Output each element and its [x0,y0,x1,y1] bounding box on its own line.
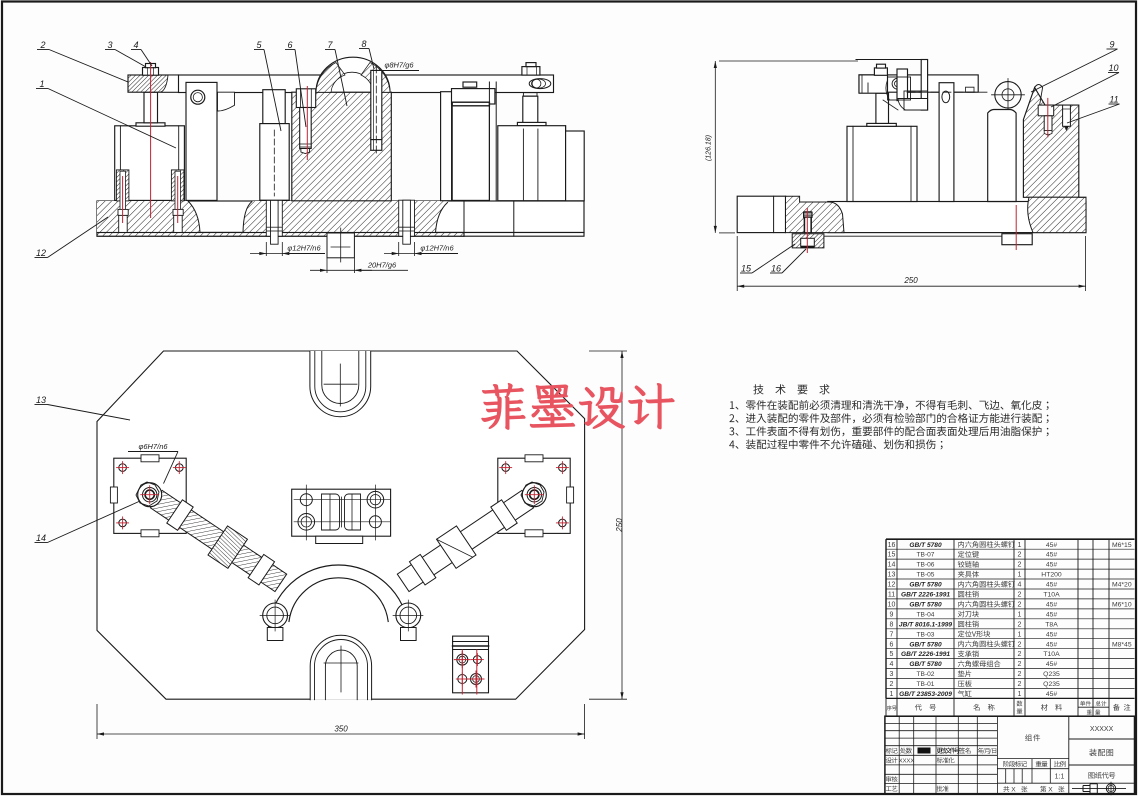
svg-text:1:1: 1:1 [1055,774,1065,781]
svg-text:13: 13 [888,572,896,579]
svg-text:1: 1 [39,79,44,89]
svg-text:GB/T 2226-1991: GB/T 2226-1991 [901,651,950,658]
svg-text:15: 15 [741,264,752,274]
svg-text:JB/T 8016.1-1999: JB/T 8016.1-1999 [899,621,952,628]
svg-text:1: 1 [1018,572,1022,579]
svg-text:φ12H7/n6: φ12H7/n6 [420,244,454,253]
svg-text:Q235: Q235 [1043,681,1060,688]
svg-text:TB-05: TB-05 [917,572,935,579]
svg-text:TB-06: TB-06 [917,562,935,569]
svg-text:XXXX: XXXX [899,759,915,765]
svg-text:φ8H7/g6: φ8H7/g6 [384,61,414,70]
svg-text:45#: 45# [1046,582,1058,589]
svg-text:2: 2 [1018,621,1022,628]
svg-text:3: 3 [890,671,894,678]
svg-text:XXXXX: XXXXX [1090,726,1114,733]
svg-text:φ12H7/n6: φ12H7/n6 [287,244,321,253]
svg-text:45#: 45# [1046,552,1058,559]
svg-text:9: 9 [890,611,894,618]
svg-text:13: 13 [36,395,46,405]
svg-text:45#: 45# [1046,641,1058,648]
svg-text:20H7/g6: 20H7/g6 [367,261,397,270]
svg-text:6: 6 [890,641,894,648]
svg-text:45#: 45# [1046,602,1058,609]
svg-text:GB/T 5780: GB/T 5780 [909,661,942,668]
svg-text:(126.18): (126.18) [706,135,713,161]
svg-text:4: 4 [890,661,894,668]
svg-text:TB-07: TB-07 [917,552,935,559]
svg-text:7: 7 [890,631,894,638]
svg-text:2: 2 [890,681,894,688]
svg-text:2: 2 [1018,671,1022,678]
svg-text:M8*45: M8*45 [1112,641,1132,648]
svg-text:5: 5 [890,651,894,658]
svg-text:GB/T 5780: GB/T 5780 [909,542,942,549]
svg-text:45#: 45# [1046,631,1058,638]
svg-text:HT200: HT200 [1041,572,1062,579]
svg-text:2: 2 [1018,651,1022,658]
svg-text:4: 4 [1018,582,1022,589]
svg-text:10: 10 [888,602,896,609]
svg-text:2: 2 [1018,562,1022,569]
svg-text:M6*10: M6*10 [1112,602,1132,609]
svg-text:250: 250 [615,518,624,533]
svg-text:12: 12 [888,582,896,589]
svg-text:GB/T 2226-1991: GB/T 2226-1991 [901,592,950,599]
svg-text:15: 15 [888,552,896,559]
svg-text:1: 1 [1018,542,1022,549]
svg-text:14: 14 [36,533,46,543]
svg-text:45#: 45# [1046,661,1058,668]
svg-text:M4*20: M4*20 [1112,582,1132,589]
svg-text:2: 2 [39,40,45,50]
svg-text:250: 250 [903,276,918,285]
svg-text:14: 14 [888,562,896,569]
svg-text:45#: 45# [1046,691,1058,698]
svg-text:T10A: T10A [1043,592,1060,599]
svg-text:8: 8 [361,39,366,49]
svg-text:1: 1 [1018,611,1022,618]
svg-text:GB/T 5780: GB/T 5780 [909,582,942,589]
svg-text:16: 16 [888,542,896,549]
svg-text:2: 2 [1018,641,1022,648]
svg-text:GB/T 23853-2009: GB/T 23853-2009 [899,691,952,698]
svg-text:2: 2 [1018,681,1022,688]
svg-text:12: 12 [36,248,46,258]
svg-text:TB-02: TB-02 [917,671,935,678]
svg-text:2: 2 [1018,661,1022,668]
svg-text:M6*15: M6*15 [1112,542,1132,549]
svg-text:X: X [1011,787,1016,794]
svg-text:16: 16 [771,264,781,274]
svg-text:Q235: Q235 [1043,671,1060,678]
svg-text:GB/T 5780: GB/T 5780 [909,602,942,609]
svg-text:45#: 45# [1046,562,1058,569]
svg-text:TB-03: TB-03 [917,631,935,638]
svg-text:8: 8 [890,621,894,628]
svg-text:45#: 45# [1046,611,1058,618]
svg-text:2: 2 [1018,552,1022,559]
svg-text:X: X [1048,787,1053,794]
svg-text:1: 1 [1018,631,1022,638]
svg-text:GB/T 5780: GB/T 5780 [909,641,942,648]
svg-text:45#: 45# [1046,542,1058,549]
svg-text:T8A: T8A [1045,621,1058,628]
svg-text:350: 350 [334,725,348,734]
svg-text:10: 10 [1108,63,1118,73]
svg-text:2: 2 [1018,592,1022,599]
svg-text:1: 1 [890,691,894,698]
svg-text:TB-01: TB-01 [917,681,935,688]
svg-text:2: 2 [1018,602,1022,609]
svg-text:φ6H7/n6: φ6H7/n6 [138,442,168,451]
svg-text:9: 9 [1109,40,1114,50]
svg-text:11: 11 [1109,95,1118,105]
svg-text:1: 1 [1018,691,1022,698]
svg-text:6: 6 [287,40,292,50]
svg-text:TB-04: TB-04 [917,611,935,618]
svg-text:T10A: T10A [1043,651,1060,658]
svg-text:3: 3 [107,40,112,50]
svg-text:11: 11 [888,592,895,599]
svg-text:4: 4 [133,40,138,50]
